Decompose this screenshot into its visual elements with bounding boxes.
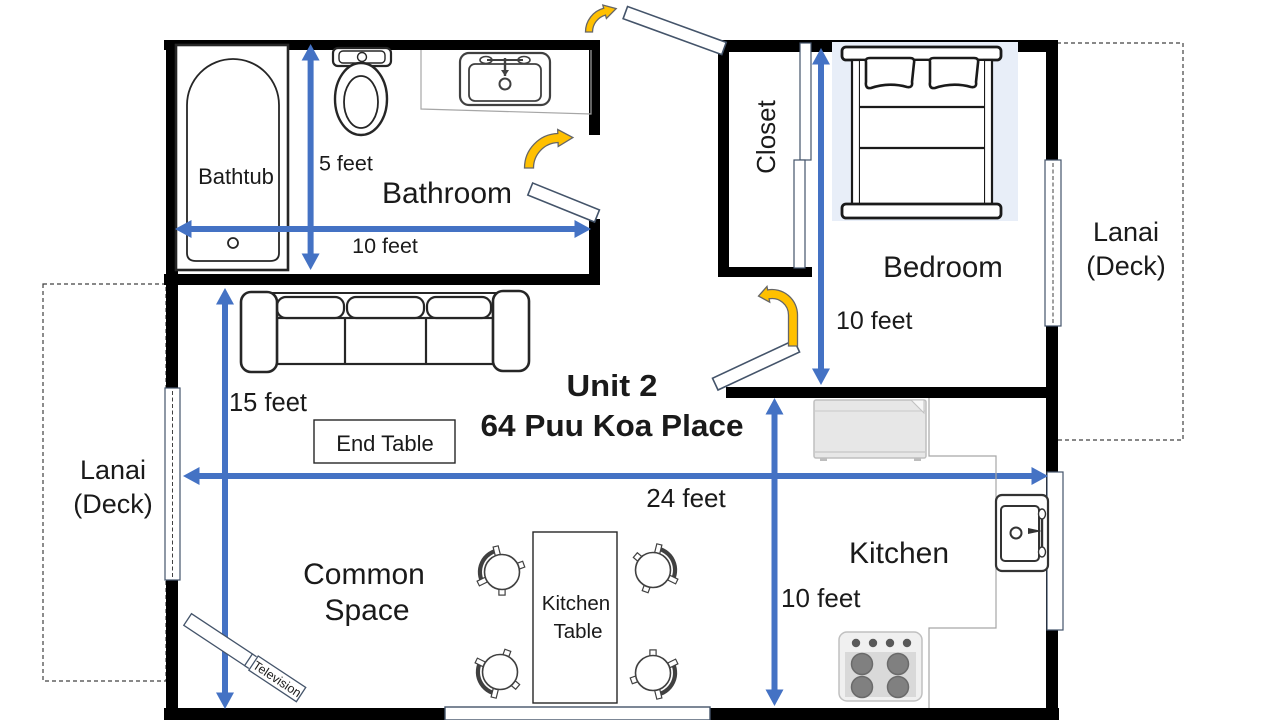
svg-text:Bathtub: Bathtub bbox=[198, 164, 274, 189]
svg-text:15 feet: 15 feet bbox=[229, 389, 307, 417]
svg-text:Lanai: Lanai bbox=[80, 455, 146, 485]
svg-text:5 feet: 5 feet bbox=[319, 152, 373, 176]
svg-text:10 feet: 10 feet bbox=[781, 583, 861, 613]
svg-text:Bathroom: Bathroom bbox=[382, 177, 512, 210]
svg-text:10 feet: 10 feet bbox=[836, 307, 913, 335]
svg-text:10 feet: 10 feet bbox=[352, 234, 418, 258]
svg-text:(Deck): (Deck) bbox=[1086, 251, 1166, 281]
svg-text:Unit 2: Unit 2 bbox=[567, 368, 658, 403]
svg-text:End Table: End Table bbox=[336, 431, 433, 456]
svg-text:Lanai: Lanai bbox=[1093, 217, 1159, 247]
svg-text:Kitchen: Kitchen bbox=[849, 537, 949, 570]
svg-text:Space: Space bbox=[324, 594, 409, 627]
svg-text:Closet: Closet bbox=[751, 99, 781, 173]
svg-text:64 Puu Koa Place: 64 Puu Koa Place bbox=[481, 408, 744, 443]
svg-text:Bedroom: Bedroom bbox=[883, 251, 1003, 284]
svg-text:Kitchen: Kitchen bbox=[542, 592, 610, 615]
svg-text:(Deck): (Deck) bbox=[73, 489, 153, 519]
svg-text:Table: Table bbox=[553, 620, 602, 643]
svg-text:24 feet: 24 feet bbox=[646, 483, 726, 513]
svg-text:Common: Common bbox=[303, 558, 425, 591]
